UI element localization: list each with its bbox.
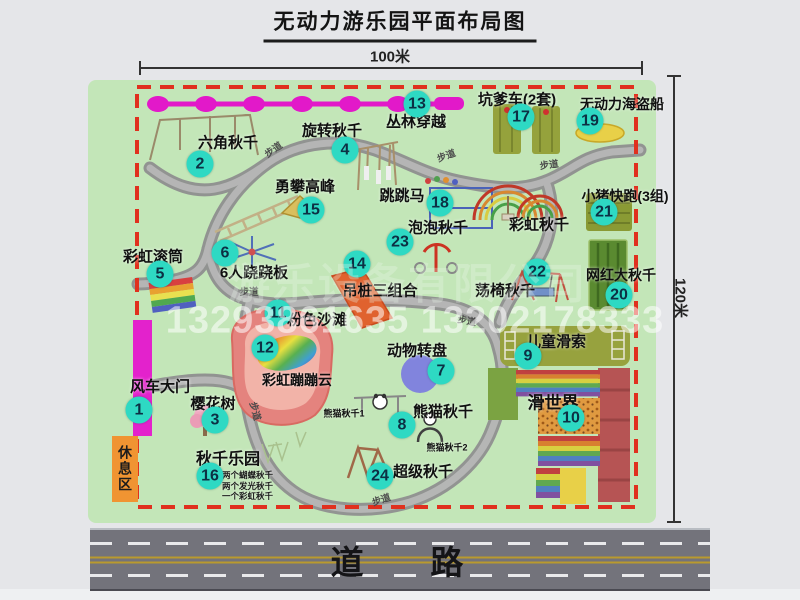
- attraction-badge-1: 1: [126, 397, 153, 424]
- attraction-label-2: 六角秋千: [198, 132, 258, 153]
- attraction-label-23: 泡泡秋千: [408, 217, 468, 238]
- attraction-label-18: 跳跳马: [379, 185, 424, 206]
- extra-label-2: 熊猫秋千2: [426, 441, 467, 454]
- park-map: 无动力游乐园平面布局图 100米 120米: [0, 0, 800, 600]
- attraction-badge-15: 15: [298, 197, 325, 224]
- page-title: 无动力游乐园平面布局图: [264, 6, 537, 43]
- attraction-badge-3: 3: [202, 407, 229, 434]
- road: 道 路: [90, 528, 710, 591]
- attraction-badge-5: 5: [147, 261, 174, 288]
- rest-area-label: 休息区: [115, 445, 135, 493]
- attraction-badge-21: 21: [591, 199, 618, 226]
- attraction-badge-16: 16: [197, 463, 224, 490]
- attraction-badge-4: 4: [332, 137, 359, 164]
- attraction-badge-19: 19: [577, 108, 604, 135]
- attraction-label-15: 勇攀高峰: [275, 176, 335, 197]
- rest-area: 休息区: [112, 436, 138, 502]
- attraction-badge-2: 2: [187, 151, 214, 178]
- extra-label-0: 彩虹秋千: [509, 214, 569, 235]
- attraction-badge-17: 17: [508, 104, 535, 131]
- watermark-phone: 13293861635 13202178333: [166, 300, 665, 343]
- path-label-2: 步道: [539, 156, 560, 173]
- dimension-top-label: 100米: [370, 46, 410, 67]
- attraction-badge-13: 13: [404, 91, 431, 118]
- attraction-label-1: 风车大门: [130, 376, 190, 397]
- attraction-notes-16: 两个蝴蝶秋千两个发光秋千一个彩虹秋千: [222, 470, 273, 502]
- attraction-badge-24: 24: [367, 463, 394, 490]
- attraction-badge-9: 9: [515, 343, 542, 370]
- attraction-badge-10: 10: [558, 405, 585, 432]
- dimension-right-label: 120米: [671, 278, 692, 318]
- attraction-label-8: 熊猫秋千: [413, 401, 473, 422]
- attraction-badge-18: 18: [427, 190, 454, 217]
- attraction-badge-8: 8: [389, 412, 416, 439]
- road-label: 道 路: [331, 536, 470, 584]
- attraction-badge-7: 7: [428, 358, 455, 385]
- attraction-label-12: 彩虹蹦蹦云: [262, 370, 332, 390]
- attraction-label-24: 超级秋千: [393, 461, 453, 482]
- attraction-label-4: 旋转秋千: [302, 120, 362, 141]
- extra-label-1: 熊猫秋千1: [323, 407, 364, 420]
